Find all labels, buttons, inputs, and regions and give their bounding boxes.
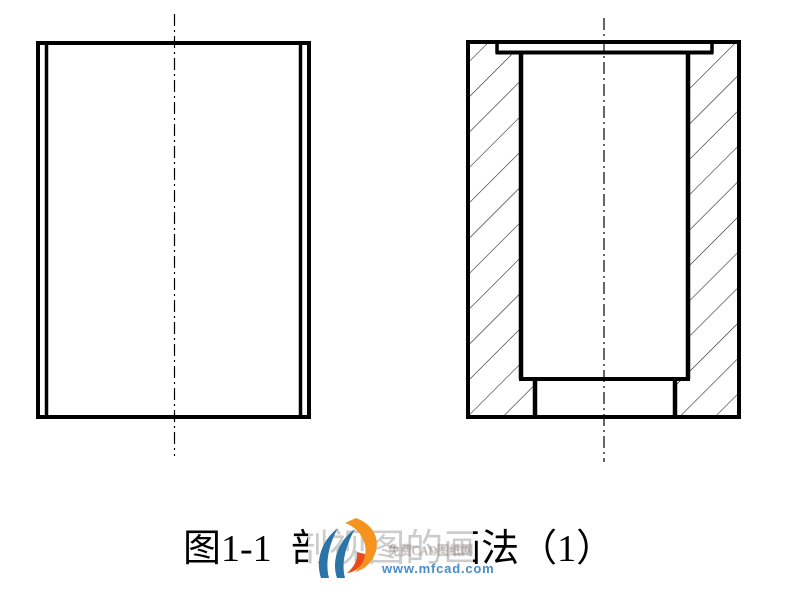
- front-view-outline: [38, 43, 309, 417]
- section-view: [468, 18, 739, 462]
- figure-canvas: 图1-1 剖视图的画法（1） 免费CAD图纸网 www.mfcad.com: [0, 0, 792, 592]
- mfcad-logo-icon: [309, 514, 389, 582]
- section-hatch-left: [468, 42, 535, 417]
- watermark-url-text: www.mfcad.com: [382, 562, 495, 576]
- logo-flame-accent: [347, 552, 365, 573]
- front-view: [38, 14, 309, 456]
- watermark-brand-text: 免费CAD图纸网: [388, 544, 473, 558]
- logo-stroke-left: [319, 528, 338, 578]
- watermark: 免费CAD图纸网 www.mfcad.com: [308, 503, 473, 584]
- section-hatch-right: [675, 42, 739, 417]
